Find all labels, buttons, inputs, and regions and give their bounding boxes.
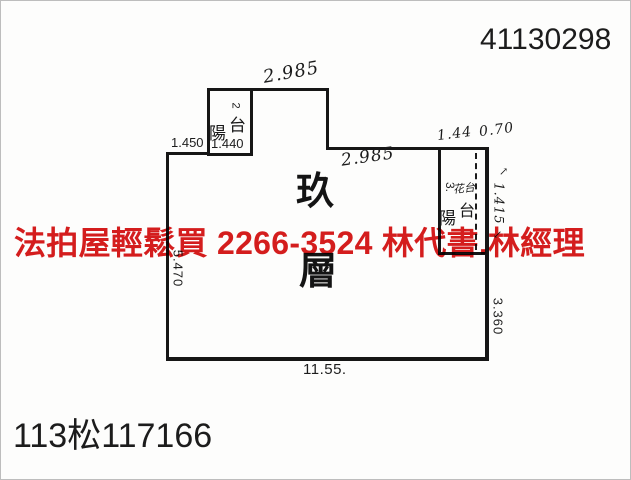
- ad-watermark: 法拍屋輕鬆買 2266-3524 林代書.林經理: [14, 218, 585, 264]
- dim-right-height: 3.360: [492, 283, 505, 351]
- dim-left-top-width: 1.450: [171, 136, 204, 149]
- outer-wall-top-left: [166, 152, 210, 155]
- dim-bottom-width: 11.55.: [303, 362, 347, 377]
- dim-right-width-a-handwritten: 1.44: [436, 125, 473, 143]
- outer-wall-step-vertical: [326, 88, 329, 150]
- serial-number: 41130298: [480, 25, 611, 55]
- dimension-arrow-up-icon: ↗: [499, 166, 509, 177]
- floor-label-top: 玖: [296, 172, 334, 210]
- balcony2-label-char1: 陽: [209, 119, 226, 144]
- case-number: 113松117166: [13, 419, 212, 453]
- balcony2-label-char2: 台: [229, 111, 246, 136]
- scanned-floorplan-page: 1.450 1.440 11.55. 5.470 3.360 2.985 2.9…: [0, 0, 631, 480]
- balcony3-flowerbox-label: 花台: [452, 182, 475, 195]
- dim-top-width-handwritten: 2.985: [262, 59, 321, 87]
- dim-mid-width-handwritten: 2.985: [340, 145, 396, 169]
- balcony2-index: 2: [230, 100, 241, 112]
- dim-right-width-b-handwritten: 0.70: [478, 121, 515, 139]
